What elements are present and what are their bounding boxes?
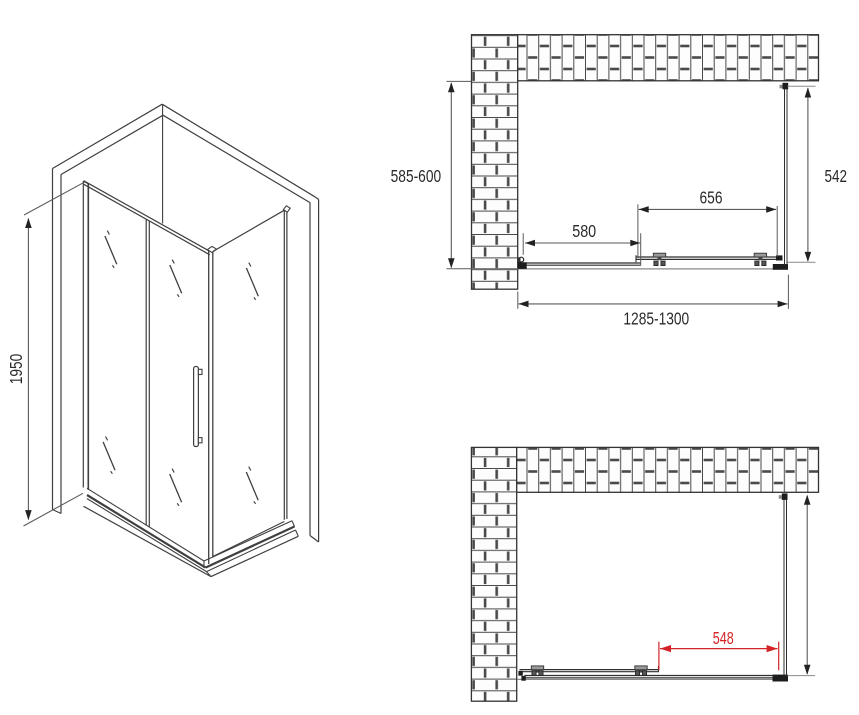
svg-text:1285-1300: 1285-1300	[623, 308, 689, 328]
svg-text:1950: 1950	[6, 354, 26, 385]
svg-text:548: 548	[713, 628, 734, 648]
svg-text:656: 656	[700, 188, 723, 208]
svg-text:580: 580	[572, 221, 596, 241]
svg-text:585-600: 585-600	[391, 166, 442, 186]
svg-text:542: 542	[825, 166, 848, 186]
